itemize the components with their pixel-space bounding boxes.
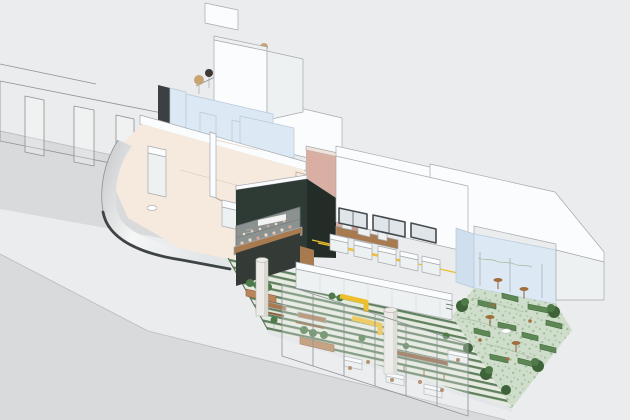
sink-basin: [147, 206, 157, 211]
garden-glass-left: [456, 228, 474, 288]
plant-pot: [194, 75, 204, 85]
axonometric-scene: [0, 0, 630, 420]
partition-wall: [210, 132, 216, 198]
white-parapet-side: [267, 51, 303, 120]
door-opening-2: [74, 106, 94, 166]
white-garden-table: [501, 329, 511, 333]
door-opening-1: [25, 96, 44, 156]
illustration-canvas: [0, 0, 630, 420]
